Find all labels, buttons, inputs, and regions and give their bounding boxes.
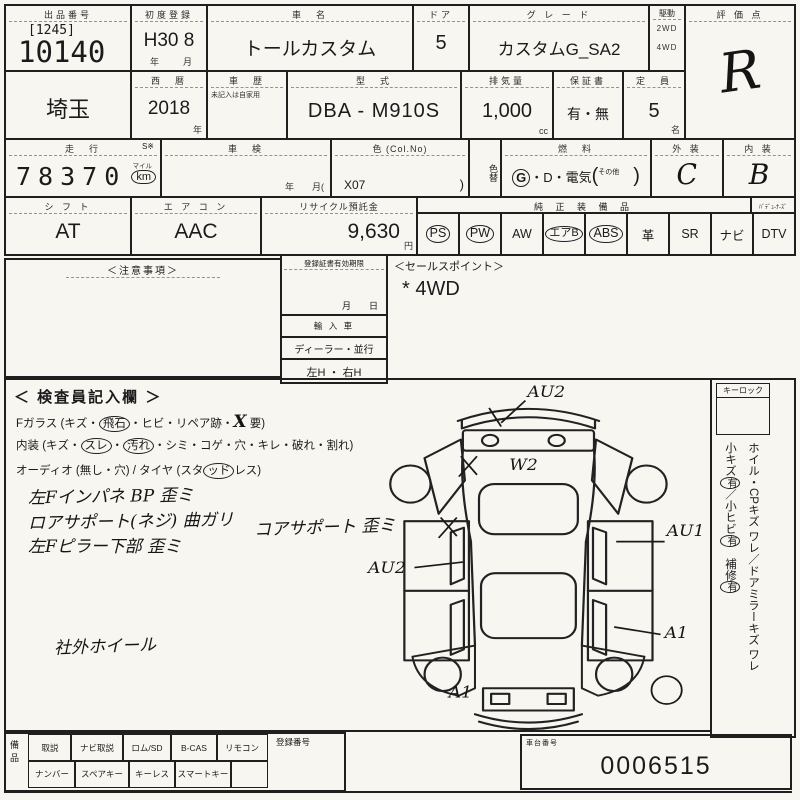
- fuel-paren-close: ): [633, 165, 640, 187]
- interior-dirt-circled: 汚れ: [123, 438, 154, 454]
- footer-smart-key-cell: スマートキー: [174, 760, 232, 788]
- sidebar-wheel-note: ホイル・CPキズ ワレ／ドアミラーキズ ワレ: [741, 442, 764, 732]
- equipment-aw: AW: [500, 214, 542, 254]
- inspector-title: ＜ 検査員記入欄 ＞: [14, 386, 162, 407]
- recycle-fee-label: リサイクル預託金: [265, 198, 413, 214]
- first-reg-month-unit: 月: [183, 55, 192, 68]
- calendar-year-label: 西 暦: [135, 72, 203, 88]
- footer-keyless-cell: キーレス: [128, 760, 176, 788]
- equipment-sr: SR: [668, 214, 710, 254]
- equipment-navi: ナビ: [710, 214, 752, 254]
- footer-plate-cell: ナンバー: [28, 760, 76, 788]
- dealer-parallel-options: ディーラー・並行: [282, 338, 386, 356]
- color-change-cell: 色替: [468, 138, 502, 198]
- equipment-pw: PW: [458, 214, 500, 254]
- footer-remote-cell: リモコン: [216, 734, 268, 762]
- drive-type-label: 駆動: [653, 6, 681, 20]
- fuel-options: ・D・電気: [530, 170, 591, 185]
- chassis-number-label: 車台番号: [526, 738, 558, 748]
- car-name-cell: 車 名 トールカスタム: [206, 4, 414, 72]
- drive-2wd-option: 2WD: [650, 24, 684, 33]
- sales-points-label: ＜セールスポイント＞: [394, 258, 774, 274]
- sales-points-value: * 4WD: [402, 278, 774, 301]
- auction-sheet: 出品番号 [1245] 10140 初度登録 H30 8 年 月 車 名 トール…: [0, 0, 800, 800]
- chassis-number-box: 車台番号 0006515: [520, 734, 792, 790]
- aircon-label: エ ア コ ン: [135, 198, 257, 214]
- displacement-value: 1,000: [462, 100, 552, 123]
- color-code-value: X07: [344, 178, 365, 192]
- sidebar-vertical-notes: ホイル・CPキズ ワレ／ドアミラーキズ ワレ 小キズ有／小ヒビ有 補修有: [718, 442, 764, 732]
- damage-mark-front-bumper: AU2: [525, 382, 565, 400]
- mileage-flag: S※: [142, 142, 154, 151]
- glass-flying-stone-circled: 飛石: [99, 416, 130, 432]
- exterior-grade-value: C: [651, 155, 724, 194]
- drive-type-cell: 駆動 2WD 4WD: [648, 4, 686, 72]
- score-value: R: [682, 33, 798, 110]
- notice-label: ＜注意事項＞: [66, 260, 220, 278]
- model-code-label: 型 式: [291, 72, 457, 88]
- exterior-grade-cell: 外 装 C: [650, 138, 724, 198]
- handwritten-note-4: 左Fピラー下部 歪ミ: [28, 532, 181, 557]
- damage-mark-right-front-door: AU1: [665, 522, 705, 540]
- interior-scuff-circled: スレ: [81, 438, 112, 454]
- capacity-cell: 定 員 5 名: [622, 70, 686, 140]
- model-code-value: DBA - M910S: [288, 100, 460, 123]
- door-label: ドア: [417, 6, 465, 22]
- equipment-badges: PS PW AW エアB ABS 革 SR ナビ DTV: [418, 214, 794, 254]
- region-cell: 埼玉: [4, 70, 132, 140]
- recycle-fee-unit: 円: [404, 239, 413, 252]
- lot-number: 10140: [6, 38, 130, 67]
- fuel-other-label: その他: [598, 169, 619, 176]
- handwritten-note-2: ロアサポート(ネジ) 曲ガリ: [28, 505, 234, 534]
- audio-tire-check-line: オーディオ (無し・穴) / タイヤ (スタッドレス): [16, 462, 261, 479]
- history-label: 車 歴: [211, 72, 283, 88]
- score-label: 評 価 点: [689, 6, 791, 22]
- grade-value: カスタムG_SA2: [470, 35, 648, 60]
- recycle-fee-cell: リサイクル預託金 9,630 円: [260, 196, 418, 256]
- calendar-year-cell: 西 暦 2018 年: [130, 70, 208, 140]
- equipment-leather: 革: [626, 214, 668, 254]
- car-name-value: トールカスタム: [208, 34, 412, 61]
- small-scratch-yes-circled: 有: [720, 477, 741, 489]
- first-registration-label: 初度登録: [135, 6, 203, 22]
- grade-cell: グ レ ー ド カスタムG_SA2: [468, 4, 650, 72]
- score-cell: 評 価 点 R: [684, 4, 796, 140]
- equipment-label: 純 正 装 備 品: [418, 198, 750, 212]
- mileage-value: 78370: [16, 162, 126, 191]
- footer-navi-manual-cell: ナビ取説: [70, 734, 124, 762]
- first-reg-year-unit: 年: [150, 55, 159, 68]
- mileage-label: 走 行: [9, 140, 157, 156]
- exterior-grade-label: 外 装: [655, 140, 719, 156]
- inspection-label: 車 検: [165, 140, 327, 156]
- recycle-fee-value: 9,630: [262, 220, 416, 244]
- damage-mark-rear-bumper: A1: [447, 683, 472, 701]
- grade-label: グ レ ー ド: [473, 6, 645, 22]
- inspection-cell: 車 検 年 月(: [160, 138, 332, 198]
- footer-equipment-label: 備品: [8, 740, 21, 766]
- door-cell: ドア 5: [412, 4, 470, 72]
- sales-points-area: ＜セールスポイント＞ * 4WD: [394, 258, 774, 368]
- color-change-label: 色替: [488, 164, 498, 182]
- chassis-number-value: 0006515: [522, 752, 790, 781]
- shift-label: シ フ ト: [9, 198, 127, 214]
- equipment-abs: ABS: [584, 214, 626, 254]
- inspection-units: 年 月(: [285, 180, 324, 193]
- import-car-label: 輸 入 車: [282, 316, 386, 332]
- lot-number-label: 出品番号: [9, 6, 127, 22]
- sidebar-column: キーロック ホイル・CPキズ ワレ／ドアミラーキズ ワレ 小キズ有／小ヒビ有 補…: [710, 378, 796, 738]
- calendar-year-value: 2018: [132, 98, 206, 120]
- footer-bcas-cell: B-CAS: [170, 734, 218, 762]
- mileage-cell: 走 行 S※ 78370 マイル km: [4, 138, 162, 198]
- notice-box: ＜注意事項＞: [4, 258, 282, 378]
- equipment-cell: 純 正 装 備 品 ﾊﾞﾃﾞｭ-ﾅ-ｽﾞ PS PW AW エアB ABS 革 …: [416, 196, 796, 256]
- damage-mark-right-rear-quarter: A1: [663, 624, 688, 642]
- handwritten-note-5: 社外ホイール: [54, 630, 157, 659]
- equipment-airbag: エアB: [542, 214, 584, 254]
- displacement-label: 排気量: [465, 72, 549, 88]
- sidebar-flags: 小キズ有／小ヒビ有 補修有: [718, 442, 741, 732]
- handwritten-note-1: 左Fインパネ BP 歪ミ: [28, 481, 194, 509]
- footer-manual-cell: 取説: [28, 734, 72, 762]
- color-label: 色 (Col.No): [335, 140, 465, 156]
- equipment-corner-label: ﾊﾞﾃﾞｭ-ﾅ-ｽﾞ: [750, 198, 794, 212]
- lot-number-cell: 出品番号 [1245] 10140: [4, 4, 132, 72]
- aircon-value: AAC: [132, 220, 260, 244]
- registration-validity-box: 登録証書有効期限 月 日: [280, 254, 388, 316]
- model-code-cell: 型 式 DBA - M910S: [286, 70, 462, 140]
- fuel-label: 燃 料: [505, 140, 647, 156]
- footer-rom-sd-cell: ロム/SD: [122, 734, 172, 762]
- small-crack-yes-circled: 有: [720, 535, 741, 547]
- warranty-label: 保証書: [557, 72, 619, 88]
- history-cell: 車 歴 未記入は自家用: [206, 70, 288, 140]
- aircon-cell: エ ア コ ン AAC: [130, 196, 262, 256]
- history-note: 未記入は自家用: [208, 88, 286, 100]
- interior-grade-label: 内 装: [727, 140, 791, 156]
- fuel-gas-circled: G: [512, 169, 530, 187]
- shift-cell: シ フ ト AT: [4, 196, 132, 256]
- equipment-ps: PS: [418, 214, 458, 254]
- color-paren: ): [460, 177, 464, 192]
- mileage-unit-circled: km: [131, 170, 156, 184]
- import-car-box: 輸 入 車: [280, 314, 388, 338]
- sheet-bottom-rule: [4, 791, 792, 793]
- interior-grade-cell: 内 装 B: [722, 138, 796, 198]
- dealer-parallel-box: ディーラー・並行: [280, 336, 388, 360]
- glass-x-mark: X: [233, 412, 246, 432]
- capacity-unit: 名: [671, 123, 680, 136]
- inspector-box: ＜ 検査員記入欄 ＞ Fガラス (キズ・飛石・ヒビ・リペア跡・X 要) 内装 (…: [4, 378, 712, 732]
- keylock-label: キーロック: [717, 384, 769, 398]
- interior-grade-value: B: [724, 158, 794, 191]
- calendar-year-unit: 年: [193, 123, 202, 136]
- fuel-cell: 燃 料 G・D・電気(その他): [500, 138, 652, 198]
- footer-spare-key-cell: スペアキー: [74, 760, 130, 788]
- registration-validity-label: 登録証書有効期限: [284, 256, 384, 270]
- interior-check-line: 内装 (キズ・スレ・汚れ・シミ・コゲ・穴・キレ・破れ・割れ): [16, 437, 353, 454]
- capacity-label: 定 員: [627, 72, 681, 88]
- warranty-value: 有・無: [554, 104, 622, 124]
- equipment-dtv: DTV: [752, 214, 794, 254]
- drive-4wd-option: 4WD: [650, 43, 684, 52]
- registration-validity-units: 月 日: [342, 299, 378, 312]
- displacement-unit: cc: [539, 126, 548, 136]
- damage-mark-hood: W2: [509, 456, 538, 474]
- handle-position-options: 左H ・ 右H: [282, 360, 386, 380]
- damage-mark-left-rear-door: AU2: [366, 559, 406, 577]
- mileage-unit-small: マイル: [133, 160, 153, 170]
- color-cell: 色 (Col.No) X07 ): [330, 138, 470, 198]
- region-value: 埼玉: [6, 92, 130, 124]
- shift-value: AT: [6, 220, 130, 244]
- first-registration-value: H30 8: [132, 30, 206, 52]
- displacement-cell: 排気量 1,000 cc: [460, 70, 554, 140]
- registration-number-label: 登録番号: [276, 736, 310, 748]
- capacity-value: 5: [624, 100, 684, 123]
- car-name-label: 車 名: [211, 6, 409, 22]
- keylock-box: キーロック: [716, 383, 770, 435]
- footer-empty-cell: [230, 760, 268, 788]
- car-damage-diagram: AU2 W2 AU1 AU2 A1 A1: [362, 382, 710, 730]
- tire-studless-circled: ッド: [203, 463, 234, 479]
- repair-yes-circled: 有: [720, 581, 741, 593]
- glass-check-line: Fガラス (キズ・飛石・ヒビ・リペア跡・X 要): [16, 412, 265, 432]
- door-value: 5: [414, 32, 468, 55]
- warranty-cell: 保証書 有・無: [552, 70, 624, 140]
- first-registration-cell: 初度登録 H30 8 年 月: [130, 4, 208, 72]
